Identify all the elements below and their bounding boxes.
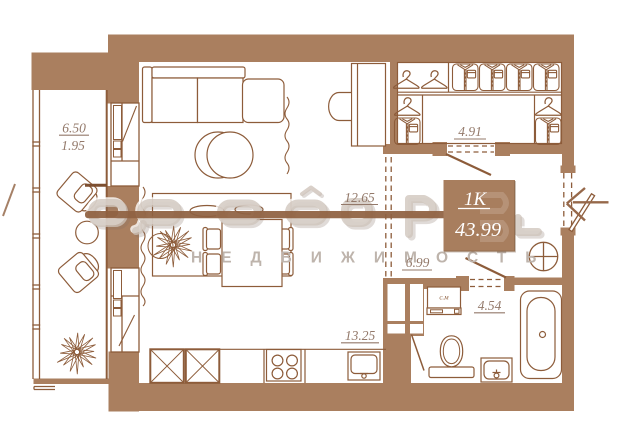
svg-text:6.99: 6.99 <box>406 255 430 270</box>
svg-text:1К: 1К <box>464 189 488 210</box>
svg-text:4.54: 4.54 <box>478 298 502 313</box>
svg-text:4.91: 4.91 <box>458 124 482 139</box>
svg-text:6.50: 6.50 <box>62 121 86 136</box>
svg-text:43.99: 43.99 <box>455 219 501 241</box>
svg-text:1.95: 1.95 <box>61 138 85 153</box>
svg-text:13.25: 13.25 <box>345 328 376 343</box>
svg-text:12.65: 12.65 <box>344 190 375 205</box>
svg-text:с.м: с.м <box>439 294 449 302</box>
